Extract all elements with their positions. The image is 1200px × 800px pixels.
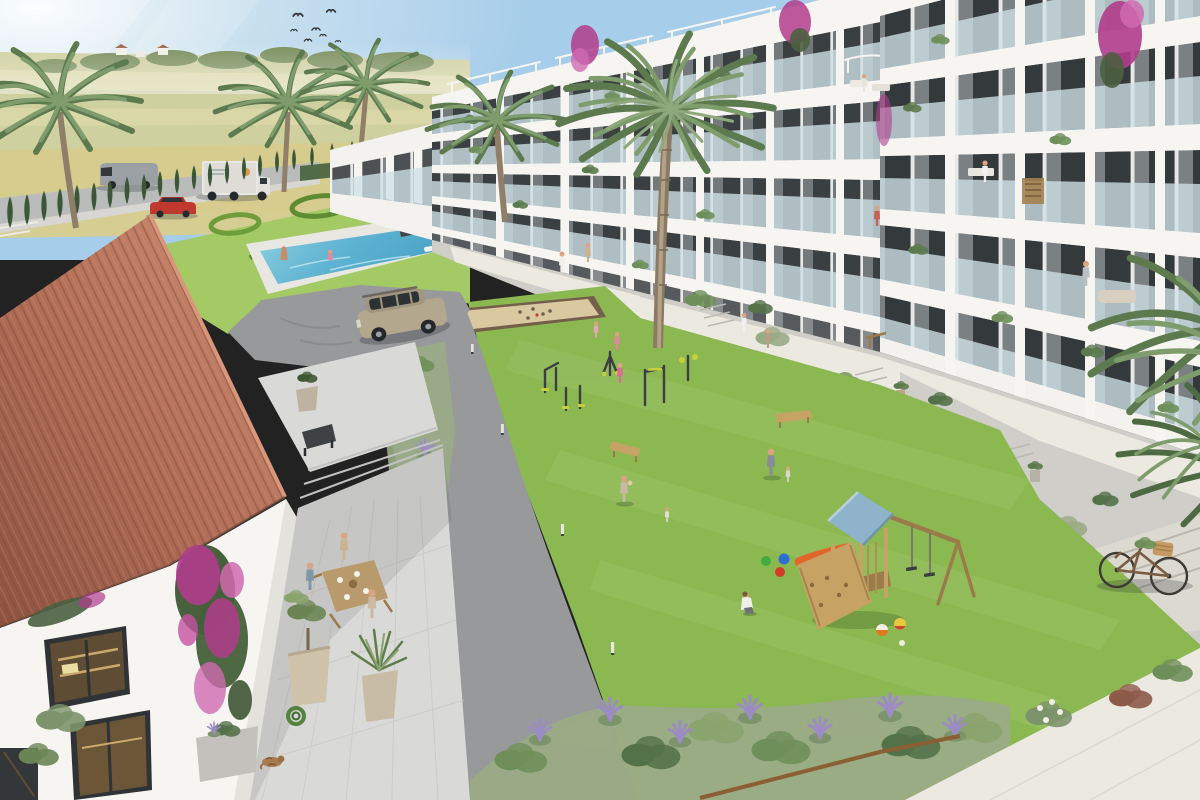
balcony-sofa [1098, 290, 1136, 303]
balcony-desk [968, 168, 994, 176]
bowl [349, 580, 357, 588]
baby [628, 481, 633, 486]
planter-pot [1030, 470, 1040, 482]
rendered-scene: Aerial 3D architectural rendering of a m… [0, 0, 1200, 800]
scene-canvas [0, 0, 1200, 800]
bookshelf [1022, 178, 1044, 204]
